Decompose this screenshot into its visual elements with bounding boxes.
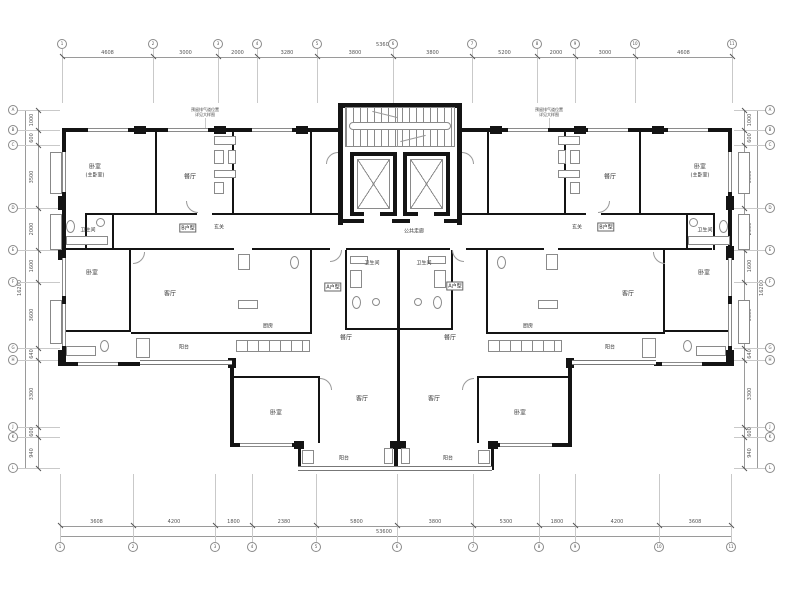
grid-bubble-top: 5 <box>312 39 322 49</box>
fixture <box>688 236 730 245</box>
door-arc <box>320 378 332 390</box>
window <box>62 258 66 296</box>
grid-bubble-left: L <box>8 463 18 473</box>
shaft-note-right-leader <box>549 118 550 128</box>
grid-line-bottom <box>316 474 317 542</box>
grid-bubble-bottom: 3 <box>210 542 220 552</box>
grid-line-bottom <box>252 474 253 542</box>
door-arc <box>133 252 145 264</box>
wall <box>112 215 114 248</box>
room-label-balcony-rw: 阳台 <box>605 344 615 351</box>
wall <box>296 126 308 134</box>
dim-value-right: 3300 <box>747 387 753 400</box>
grid-bubble-bottom: 8 <box>534 542 544 552</box>
grid-line-right <box>734 282 766 283</box>
grid-line-bottom <box>397 474 398 542</box>
wall <box>652 126 664 134</box>
room-label-bath-lw: 卫生间 <box>80 227 95 234</box>
window <box>252 128 292 132</box>
shaft-note-left-line2: 详见大样图 <box>195 112 215 117</box>
wall <box>338 103 343 225</box>
room-label-dining-cr: 餐厅 <box>444 333 456 342</box>
dim-line-left-overall <box>25 110 26 468</box>
wall <box>457 103 462 225</box>
elevator-car-right <box>410 159 443 209</box>
grid-bubble-top: 2 <box>148 39 158 49</box>
grid-bubble-bottom: 5 <box>311 542 321 552</box>
dim-value-left: 640 <box>29 349 35 359</box>
grid-bubble-top: 7 <box>467 39 477 49</box>
dim-value-bottom: 4200 <box>611 519 624 525</box>
grid-bubble-left: K <box>8 432 18 442</box>
wall <box>66 248 234 250</box>
dim-value-right: 1000 <box>747 114 753 127</box>
door-arc <box>452 250 464 262</box>
fixture <box>558 170 580 178</box>
grid-line-bottom <box>539 474 540 542</box>
room-label-living-rw: 客厅 <box>622 289 634 298</box>
kitchen-counter <box>236 340 310 352</box>
dim-value-left: 2000 <box>29 223 35 236</box>
unit-label-a-center-left: A户型 <box>324 283 341 292</box>
fixture-round <box>683 340 692 352</box>
fixture-round <box>100 340 109 352</box>
bay-window <box>50 300 62 344</box>
wall <box>134 126 146 134</box>
window <box>508 128 548 132</box>
grid-bubble-left: H <box>8 355 18 365</box>
window <box>88 128 128 132</box>
window <box>728 304 732 346</box>
wall <box>558 248 712 250</box>
dim-value-left: 940 <box>29 448 35 458</box>
grid-line-right <box>734 145 766 146</box>
room-label-balcony-cl: 阳台 <box>339 455 349 462</box>
grid-bubble-left: G <box>8 343 18 353</box>
room-label-entry-left: 玄关 <box>214 224 224 231</box>
grid-bubble-left: C <box>8 140 18 150</box>
dim-value-top: 2000 <box>231 50 244 56</box>
grid-bubble-right: A <box>765 105 775 115</box>
shaft-note-left-leader <box>205 118 206 128</box>
door-arc <box>326 152 338 164</box>
elevator-door-right <box>418 210 434 218</box>
grid-bubble-right: G <box>765 343 775 353</box>
fixture <box>66 236 108 245</box>
kitchen-counter <box>488 340 562 352</box>
unit-label-b-left: B户型 <box>179 224 196 233</box>
grid-bubble-right: K <box>765 432 775 442</box>
fixture <box>434 270 446 288</box>
wall <box>310 250 312 334</box>
fixture-round <box>719 220 728 233</box>
wall <box>58 196 66 210</box>
dim-value-left: 3600 <box>29 309 35 322</box>
grid-bubble-left: A <box>8 105 18 115</box>
grid-line-bottom <box>215 474 216 542</box>
window <box>168 128 208 132</box>
dim-value-left: 600 <box>29 427 35 437</box>
grid-bubble-bottom: 9 <box>570 542 580 552</box>
fixture <box>570 182 580 194</box>
grid-bubble-top: 3 <box>213 39 223 49</box>
wall <box>490 126 502 134</box>
grid-bubble-top: 6 <box>388 39 398 49</box>
room-label-bedroom-tl: 卧室 <box>89 162 101 171</box>
dim-value-bottom: 4200 <box>168 519 181 525</box>
grid-bubble-bottom: 11 <box>726 542 736 552</box>
grid-line-right <box>734 468 766 469</box>
grid-bubble-bottom: 2 <box>128 542 138 552</box>
wall <box>252 248 330 250</box>
dim-value-right: 600 <box>747 133 753 143</box>
door-arc <box>653 252 665 264</box>
door-arc <box>598 201 610 213</box>
wall <box>639 132 641 213</box>
wall <box>310 132 312 213</box>
room-label-kitchen-cl: 厨房 <box>263 323 273 330</box>
dim-line-top <box>62 57 732 58</box>
wall <box>294 441 304 449</box>
fixture <box>570 150 580 164</box>
fixture <box>214 136 236 145</box>
dim-value-left: 600 <box>29 133 35 143</box>
room-label-living-cr: 客厅 <box>428 394 440 403</box>
room-label-bath-center-left: 卫生间 <box>364 260 379 267</box>
grid-line-right <box>734 437 766 438</box>
dim-value-top: 3280 <box>281 50 294 56</box>
fixture-round <box>66 220 75 233</box>
stair-landing <box>349 122 451 130</box>
room-label-living-lw: 客厅 <box>164 289 176 298</box>
door-arc <box>330 250 342 262</box>
overall-dim-bottom: 53600 <box>376 529 392 535</box>
window <box>588 128 628 132</box>
room-label-dining-cl: 餐厅 <box>340 333 352 342</box>
room-label-bath-center-right: 卫生间 <box>416 260 431 267</box>
grid-bubble-right: C <box>765 140 775 150</box>
fixture <box>558 150 566 164</box>
wall <box>232 332 312 334</box>
room-label-bedroom-tr: 卧室 <box>694 162 706 171</box>
wall <box>663 330 732 332</box>
grid-line-right <box>734 250 766 251</box>
fixture-round <box>290 256 299 269</box>
dim-value-bottom: 3608 <box>90 519 103 525</box>
fixture <box>214 150 224 164</box>
grid-bubble-bottom: 7 <box>468 542 478 552</box>
elevator-car-left <box>357 159 390 209</box>
grid-line-bottom <box>659 474 660 542</box>
grid-bubble-top: 10 <box>630 39 640 49</box>
unit-label-b-right: B户型 <box>597 223 614 232</box>
wall <box>487 132 489 213</box>
elevator-shaft-left <box>350 152 397 216</box>
balcony-rail <box>572 360 656 365</box>
grid-bubble-right: D <box>765 203 775 213</box>
fixture <box>384 448 393 464</box>
dim-line-bottom <box>60 526 731 527</box>
dim-value-top: 3800 <box>349 50 362 56</box>
wall <box>345 250 347 330</box>
wall <box>345 328 399 330</box>
wall <box>155 132 157 213</box>
dim-value-right: 1600 <box>747 260 753 273</box>
dim-value-left: 1000 <box>29 114 35 127</box>
door-arc <box>462 152 474 164</box>
room-label-living-cl: 客厅 <box>356 394 368 403</box>
floor-plan-canvas: 53600 53600 16200 16200 1460823000320004… <box>0 0 800 600</box>
dim-value-top: 4608 <box>677 50 690 56</box>
dim-value-bottom: 1800 <box>551 519 564 525</box>
room-label-kitchen-cr: 厨房 <box>523 323 533 330</box>
fixture <box>558 136 580 145</box>
grid-line-bottom <box>731 474 732 542</box>
dim-line-bottom-overall <box>60 536 731 537</box>
room-label-bedroom-cr: 卧室 <box>514 408 526 417</box>
bay-window <box>50 214 62 250</box>
window <box>62 304 66 346</box>
balcony-rail <box>140 360 232 365</box>
bay-window <box>738 300 750 344</box>
dim-value-top: 4608 <box>101 50 114 56</box>
wall <box>726 196 734 210</box>
grid-bubble-bottom: 10 <box>654 542 664 552</box>
dim-value-left: 3500 <box>29 170 35 183</box>
grid-bubble-left: J <box>8 422 18 432</box>
grid-bubble-right: H <box>765 355 775 365</box>
dim-value-right: 940 <box>747 448 753 458</box>
wall <box>466 248 544 250</box>
fixture <box>238 300 258 309</box>
window <box>668 128 708 132</box>
dim-value-left: 1600 <box>29 260 35 273</box>
wall <box>131 332 232 334</box>
dim-value-bottom: 2380 <box>278 519 291 525</box>
window <box>62 152 66 192</box>
dim-value-bottom: 3800 <box>429 519 442 525</box>
dim-value-top: 3800 <box>426 50 439 56</box>
wall <box>486 250 488 334</box>
wall <box>338 219 364 223</box>
wall <box>392 219 410 223</box>
fixture <box>66 346 96 356</box>
wall <box>232 376 320 378</box>
wall <box>212 213 338 215</box>
grid-bubble-left: D <box>8 203 18 213</box>
dim-value-top: 2000 <box>550 50 563 56</box>
grid-line-bottom <box>473 474 474 542</box>
door-arc <box>462 378 474 390</box>
elevator-door-left <box>364 210 380 218</box>
grid-bubble-bottom: 6 <box>392 542 402 552</box>
grid-line-right <box>734 130 766 131</box>
wall <box>486 332 568 334</box>
room-label-dining-tr: 餐厅 <box>604 172 616 181</box>
grid-bubble-top: 8 <box>532 39 542 49</box>
dim-value-right: 640 <box>747 349 753 359</box>
wall <box>477 376 571 378</box>
fixture-round <box>372 298 380 306</box>
fixture <box>238 254 250 270</box>
balcony-rail <box>298 466 492 471</box>
room-label-entry-right: 玄关 <box>572 224 582 231</box>
room-label-balcony-cr: 阳台 <box>443 455 453 462</box>
wall <box>397 250 400 445</box>
wall <box>230 362 234 447</box>
grid-bubble-right: E <box>765 245 775 255</box>
window <box>500 443 552 447</box>
grid-line-right <box>734 110 766 111</box>
wall <box>568 362 572 447</box>
dim-value-bottom: 3608 <box>689 519 702 525</box>
grid-bubble-right: L <box>765 463 775 473</box>
wall <box>488 441 498 449</box>
room-label-bedroom-cl: 卧室 <box>270 408 282 417</box>
window <box>78 362 118 366</box>
fixture <box>214 170 236 178</box>
fixture <box>401 448 410 464</box>
unit-label-a-center-right: A户型 <box>446 282 463 291</box>
room-label-balcony-lw: 阳台 <box>179 344 189 351</box>
grid-line-right <box>734 208 766 209</box>
room-label-corridor: 公共走廊 <box>404 228 424 235</box>
room-label-dining-tl: 餐厅 <box>184 172 196 181</box>
fixture <box>228 150 236 164</box>
wall <box>574 126 586 134</box>
grid-bubble-top: 11 <box>727 39 737 49</box>
grid-bubble-right: J <box>765 422 775 432</box>
room-label-bath-rw: 卫生间 <box>697 227 712 234</box>
fixture-round <box>352 296 361 309</box>
grid-bubble-bottom: 1 <box>55 542 65 552</box>
wall <box>444 219 462 223</box>
fixture-round <box>414 298 422 306</box>
grid-bubble-top: 1 <box>57 39 67 49</box>
dim-value-top: 3000 <box>179 50 192 56</box>
fixture <box>136 338 150 358</box>
grid-bubble-left: B <box>8 125 18 135</box>
wall <box>62 330 131 332</box>
fixture <box>696 346 726 356</box>
grid-bubble-left: E <box>8 245 18 255</box>
wall <box>726 350 734 366</box>
room-label-bedroom-rw: 卧室 <box>698 268 710 277</box>
grid-bubble-bottom: 4 <box>247 542 257 552</box>
wall <box>601 213 715 215</box>
grid-bubble-top: 9 <box>570 39 580 49</box>
door-arc <box>186 201 198 213</box>
window <box>240 443 292 447</box>
fixture-round <box>96 218 105 227</box>
dim-value-right: 600 <box>747 427 753 437</box>
wall <box>462 213 586 215</box>
grid-line-bottom <box>133 474 134 542</box>
dim-value-top: 3000 <box>599 50 612 56</box>
room-label-bedroom-lw: 卧室 <box>86 268 98 277</box>
dim-value-top: 5200 <box>498 50 511 56</box>
bay-window <box>738 214 750 250</box>
wall <box>85 213 197 215</box>
grid-bubble-top: 4 <box>252 39 262 49</box>
dim-value-left: 3300 <box>29 387 35 400</box>
fixture-round <box>433 296 442 309</box>
bay-window <box>738 152 750 194</box>
fixture <box>642 338 656 358</box>
wall <box>399 328 453 330</box>
dim-value-bottom: 5300 <box>500 519 513 525</box>
window <box>728 152 732 192</box>
dim-value-bottom: 1800 <box>227 519 240 525</box>
elevator-shaft-right <box>403 152 450 216</box>
grid-line-bottom <box>575 474 576 542</box>
wall <box>58 350 66 366</box>
grid-bubble-right: B <box>765 125 775 135</box>
bay-window <box>50 152 62 194</box>
fixture <box>350 270 362 288</box>
shaft-note-right-line2: 详见大样图 <box>539 112 559 117</box>
dim-line-right-overall <box>757 110 758 468</box>
wall <box>129 250 131 332</box>
dim-line-left <box>38 110 39 468</box>
fixture <box>214 182 224 194</box>
fixture <box>538 300 558 309</box>
wall <box>214 126 226 134</box>
room-sublabel-master-tl: (主卧室) <box>86 172 105 179</box>
room-sublabel-master-tr: (主卧室) <box>691 172 710 179</box>
window <box>728 258 732 296</box>
wall <box>568 332 665 334</box>
fixture <box>546 254 558 270</box>
grid-line-bottom <box>60 474 61 542</box>
fixture <box>302 450 314 464</box>
grid-bubble-left: F <box>8 277 18 287</box>
grid-bubble-right: F <box>765 277 775 287</box>
fixture-round <box>497 256 506 269</box>
window <box>662 362 702 366</box>
fixture <box>478 450 490 464</box>
grid-line-right <box>734 360 766 361</box>
dim-value-bottom: 5800 <box>350 519 363 525</box>
wall <box>477 376 479 443</box>
